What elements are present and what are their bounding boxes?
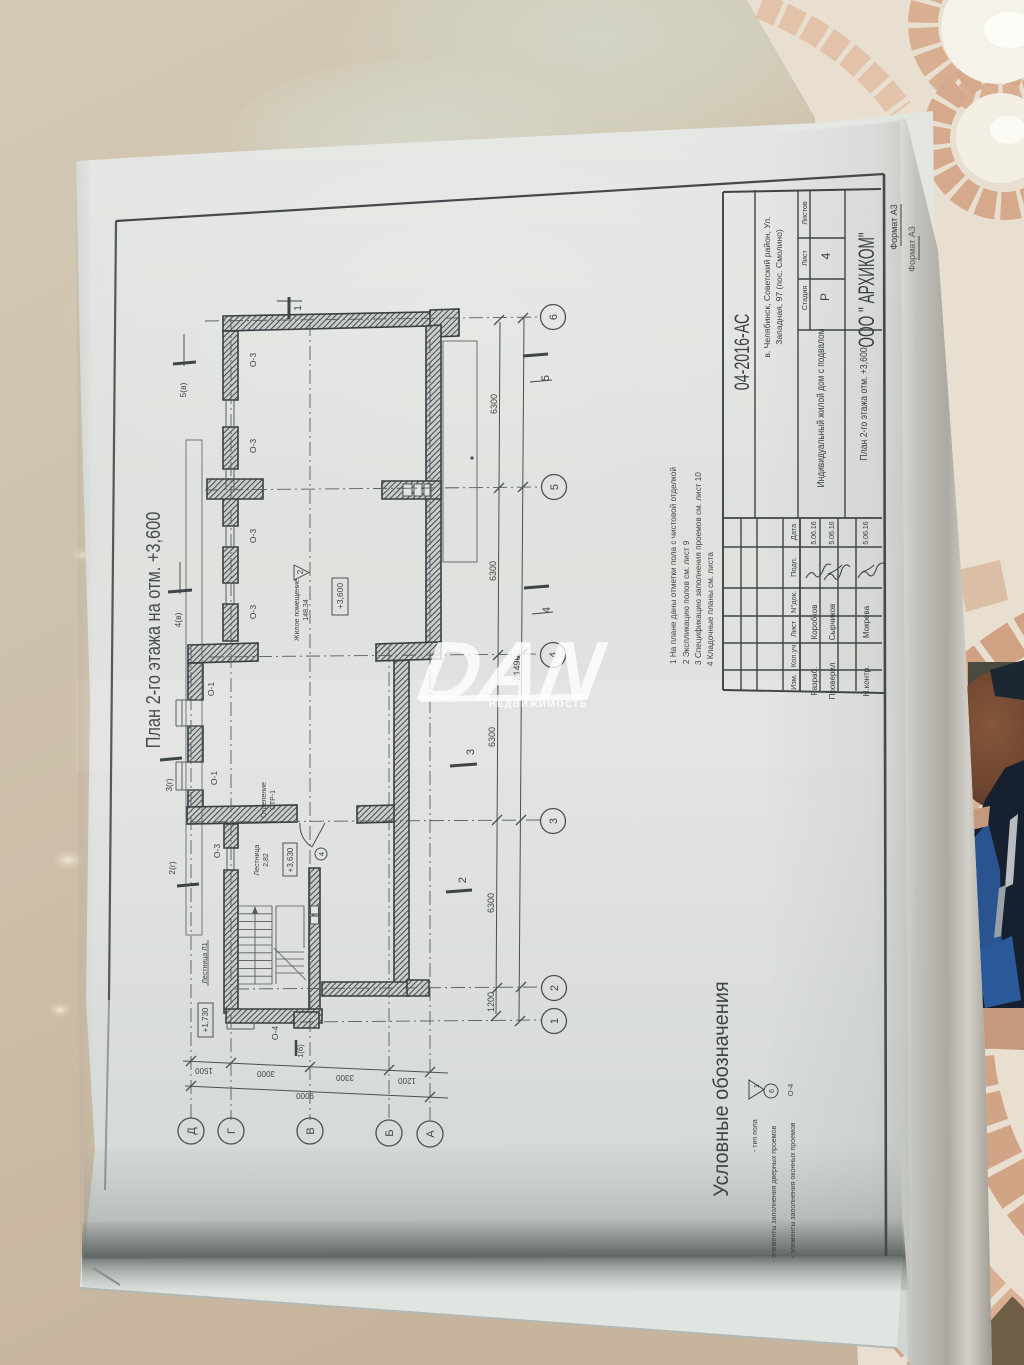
svg-text:Коробков: Коробков <box>810 605 819 640</box>
svg-text:Д: Д <box>186 1127 198 1135</box>
svg-text:+3,630: +3,630 <box>286 847 295 872</box>
svg-text:Мокрева: Мокрева <box>862 605 871 638</box>
svg-text:в. Челябинск, Советский район,: в. Челябинск, Советский район, Ул. <box>762 216 772 357</box>
svg-text:А: А <box>425 1130 437 1138</box>
svg-text:1: 1 <box>752 1084 761 1088</box>
svg-text:4: 4 <box>541 607 553 613</box>
svg-text:О-4: О-4 <box>270 1026 280 1040</box>
svg-text:6300: 6300 <box>487 727 497 747</box>
svg-text:Кол.уч: Кол.уч <box>789 645 798 667</box>
svg-text:Стадия: Стадия <box>800 286 809 311</box>
svg-text:3: 3 <box>548 818 560 824</box>
svg-text:5.06.16: 5.06.16 <box>829 521 836 544</box>
svg-text:О-1: О-1 <box>206 682 216 696</box>
svg-text:6300: 6300 <box>488 561 498 581</box>
svg-text:Б: Б <box>384 1129 396 1136</box>
svg-text:1(б): 1(б) <box>296 1044 305 1058</box>
svg-text:О-3: О-3 <box>212 844 222 858</box>
svg-text:Дата: Дата <box>789 523 798 540</box>
svg-text:Проверил: Проверил <box>828 662 837 699</box>
svg-text:План 2-го этажа отм. +3,600: План 2-го этажа отм. +3,600 <box>858 347 870 460</box>
svg-text:4: 4 <box>819 252 833 259</box>
svg-text:Г: Г <box>226 1128 238 1134</box>
svg-text:Изм.: Изм. <box>789 674 798 690</box>
svg-text:НЕДВИЖИМОСТЬ: НЕДВИЖИМОСТЬ <box>489 699 588 710</box>
svg-text:3: 3 <box>465 749 477 755</box>
svg-text:Индивидуальный жилой дом с под: Индивидуальный жилой дом с подвалом <box>815 329 826 488</box>
svg-text:6: 6 <box>769 1089 776 1093</box>
svg-text:- элементы заполнения дверных: - элементы заполнения дверных проемов <box>771 1126 778 1262</box>
svg-text:Западная, 97 (пос. Смолино): Западная, 97 (пос. Смолино) <box>774 229 784 345</box>
svg-text:Разраб.: Разраб. <box>810 667 819 696</box>
svg-text:3300: 3300 <box>336 1073 354 1082</box>
svg-text:- элементы заполнения оконных: - элементы заполнения оконных проемов <box>790 1122 797 1258</box>
svg-text:Отделение: Отделение <box>261 782 268 818</box>
svg-text:Р: Р <box>818 293 832 301</box>
svg-text:ООО " АРХИКОМ": ООО " АРХИКОМ" <box>854 232 879 347</box>
svg-text:Лист: Лист <box>800 249 809 265</box>
svg-text:1200: 1200 <box>486 992 496 1012</box>
svg-text:Условные обозначения: Условные обозначения <box>710 981 734 1196</box>
svg-text:4 Кладочные планы см. листа: 4 Кладочные планы см. листа <box>706 552 715 666</box>
svg-text:5.06.16: 5.06.16 <box>811 521 818 544</box>
svg-text:СТР-1: СТР-1 <box>270 790 277 810</box>
svg-text:1 На плане даны отметки пола с: 1 На плане даны отметки пола с чистовой … <box>669 467 678 664</box>
svg-text:- тип пола: - тип пола <box>752 1119 759 1152</box>
svg-text:5: 5 <box>540 375 552 381</box>
svg-text:Формат А3: Формат А3 <box>907 226 917 271</box>
svg-text:2: 2 <box>549 985 561 991</box>
svg-text:Подп.: Подп. <box>789 557 798 577</box>
svg-text:Лестница Л1: Лестница Л1 <box>202 942 209 983</box>
svg-text:О-4: О-4 <box>786 1084 795 1097</box>
svg-text:Жилое помещение: Жилое помещение <box>294 579 301 641</box>
svg-text:4(в): 4(в) <box>173 612 183 627</box>
svg-text:148,34: 148,34 <box>303 599 310 621</box>
svg-text:Лестница: Лестница <box>254 844 261 875</box>
svg-text:О-3: О-3 <box>248 529 258 543</box>
svg-text:5.06.16: 5.06.16 <box>863 521 870 544</box>
svg-text:1: 1 <box>293 305 304 311</box>
svg-text:О-3: О-3 <box>248 353 258 367</box>
svg-text:2(г): 2(г) <box>167 861 177 875</box>
svg-text:+3,600: +3,600 <box>335 583 345 610</box>
svg-text:9000: 9000 <box>296 1091 314 1100</box>
svg-text:5(в): 5(в) <box>178 382 188 397</box>
svg-text:5: 5 <box>549 484 561 490</box>
svg-text:План 2-го этажа на отм. +3,600: План 2-го этажа на отм. +3,600 <box>141 512 164 749</box>
svg-text:2: 2 <box>296 569 305 574</box>
svg-text:3(г): 3(г) <box>164 778 174 792</box>
svg-text:О-3: О-3 <box>248 605 258 619</box>
svg-text:О-3: О-3 <box>248 439 258 453</box>
svg-text:Формат А3: Формат А3 <box>889 204 899 249</box>
svg-text:N°док.: N°док. <box>789 591 798 613</box>
svg-text:6300: 6300 <box>486 893 496 913</box>
svg-text:Н.контр.: Н.контр. <box>862 666 871 697</box>
svg-text:+1,730: +1,730 <box>201 1007 210 1032</box>
svg-text:1: 1 <box>549 1018 561 1024</box>
svg-text:6: 6 <box>548 314 560 320</box>
svg-text:3 Спецификацию заполнения прое: 3 Спецификацию заполнения проемов см. ли… <box>694 472 703 665</box>
svg-text:В: В <box>305 1127 317 1134</box>
svg-text:2: 2 <box>457 877 469 883</box>
svg-text:04-2016-АС: 04-2016-АС <box>730 314 753 391</box>
svg-text:6300: 6300 <box>489 394 499 414</box>
svg-text:1200: 1200 <box>398 1076 416 1085</box>
svg-text:Сырчиков: Сырчиков <box>828 604 837 641</box>
svg-text:1500: 1500 <box>195 1066 213 1075</box>
svg-text:О-1: О-1 <box>209 771 219 785</box>
svg-text:Лист: Лист <box>789 620 798 637</box>
svg-text:Листов: Листов <box>800 201 809 225</box>
svg-text:2,82: 2,82 <box>263 853 270 867</box>
svg-text:2 Экспликацию полов см. лист 9: 2 Экспликацию полов см. лист 9 <box>682 540 691 664</box>
svg-text:3000: 3000 <box>257 1069 275 1078</box>
svg-text:4: 4 <box>317 852 326 856</box>
